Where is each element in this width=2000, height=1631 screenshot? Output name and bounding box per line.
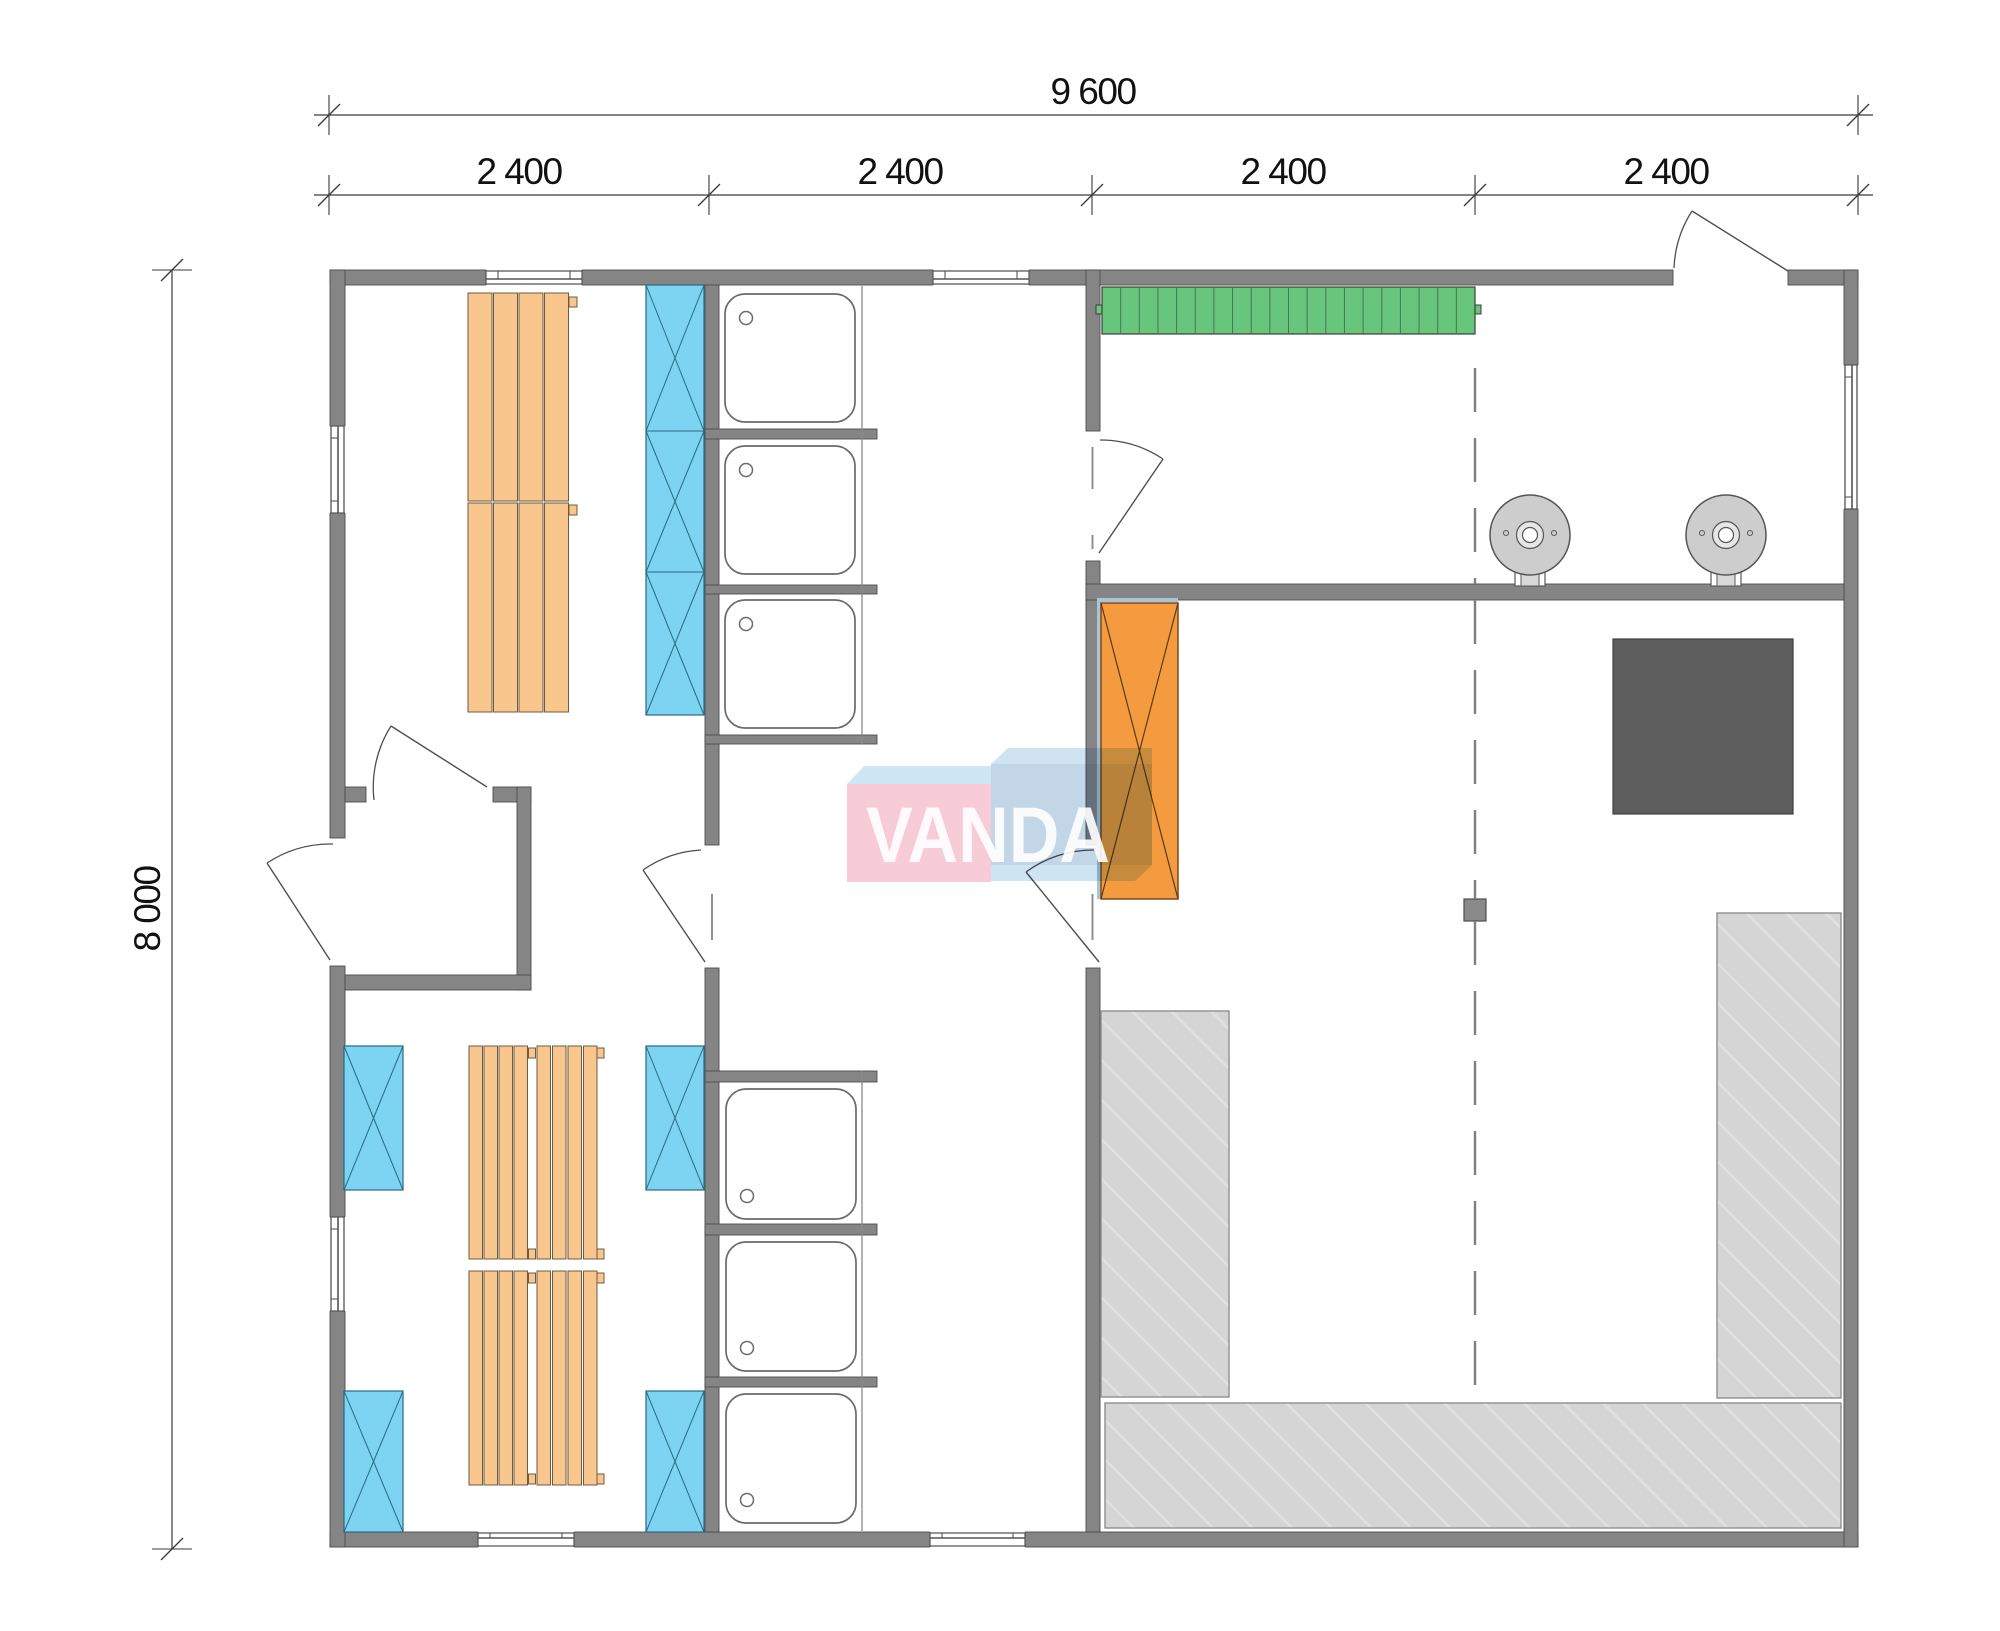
svg-text:9 600: 9 600 — [1050, 71, 1136, 112]
svg-text:2 400: 2 400 — [476, 151, 562, 192]
svg-text:2 400: 2 400 — [1240, 151, 1326, 192]
svg-text:2 400: 2 400 — [1623, 151, 1709, 192]
svg-text:2 400: 2 400 — [857, 151, 943, 192]
svg-text:8 000: 8 000 — [127, 866, 168, 952]
svg-text:VANDA: VANDA — [866, 790, 1110, 879]
